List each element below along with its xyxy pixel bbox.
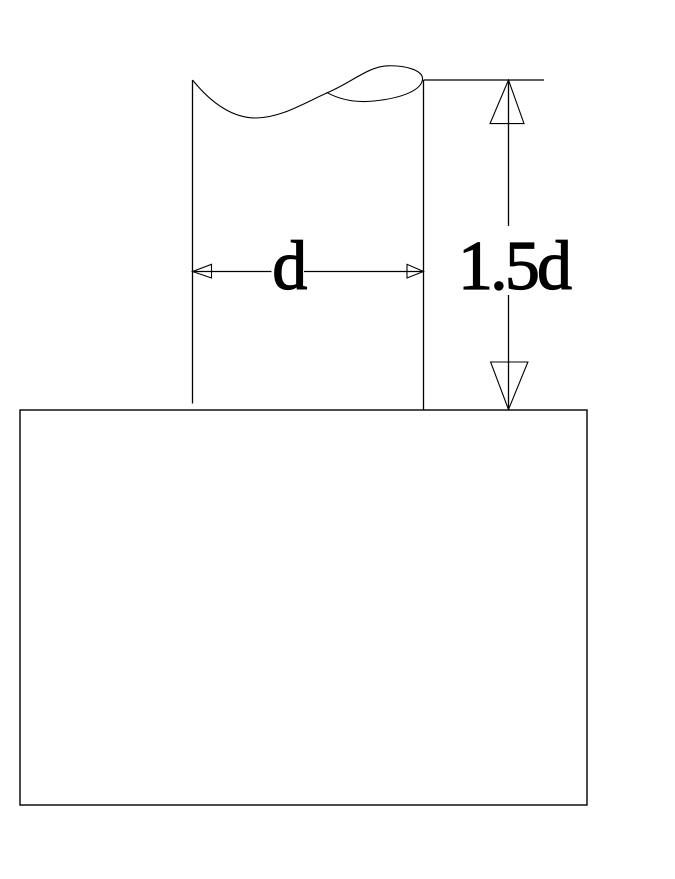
svg-text:1.5d: 1.5d — [458, 228, 572, 305]
svg-text:d: d — [272, 228, 307, 305]
